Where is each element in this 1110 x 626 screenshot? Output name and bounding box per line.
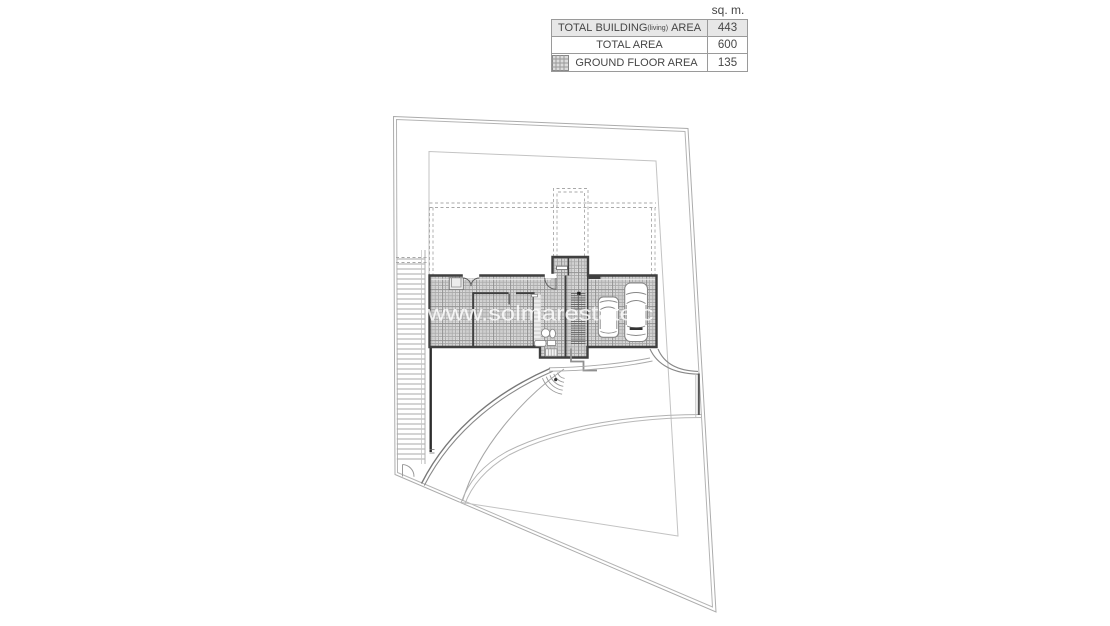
svg-text:www.solmarestate.c: www.solmarestate.c [426,303,653,326]
